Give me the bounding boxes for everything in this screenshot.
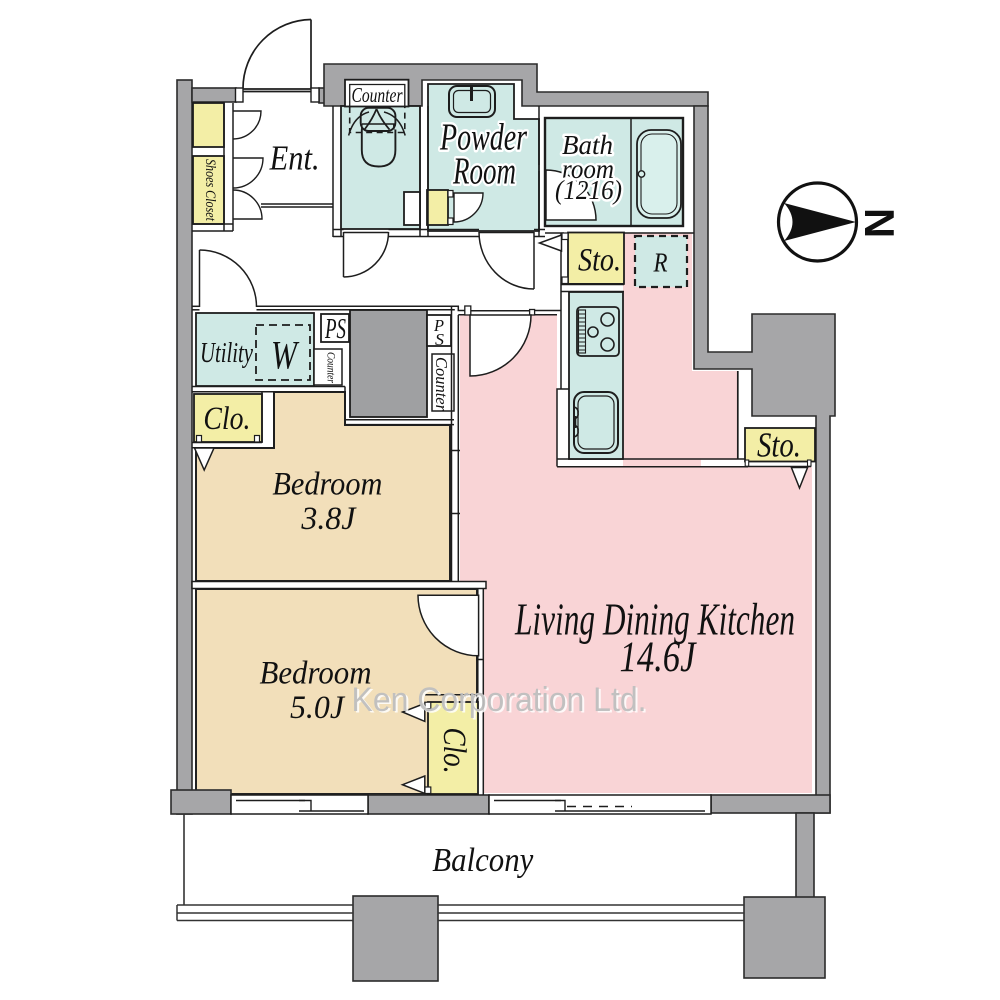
svg-text:Ent.: Ent. bbox=[269, 138, 320, 177]
svg-text:Balcony: Balcony bbox=[432, 842, 534, 879]
svg-text:14.6J: 14.6J bbox=[620, 634, 698, 681]
svg-text:Shoes Closet: Shoes Closet bbox=[202, 159, 218, 222]
svg-text:Room: Room bbox=[452, 151, 516, 193]
svg-text:(1216): (1216) bbox=[555, 175, 622, 205]
svg-text:Counter: Counter bbox=[325, 352, 339, 383]
svg-text:PS: PS bbox=[324, 314, 346, 345]
svg-text:N: N bbox=[856, 208, 903, 238]
svg-text:Counter: Counter bbox=[432, 357, 451, 411]
svg-text:R: R bbox=[653, 248, 668, 278]
svg-text:W: W bbox=[271, 333, 300, 378]
svg-text:Counter: Counter bbox=[352, 83, 404, 107]
svg-text:S: S bbox=[435, 330, 445, 349]
svg-text:Sto.: Sto. bbox=[757, 426, 801, 465]
svg-text:3.8J: 3.8J bbox=[300, 501, 356, 537]
svg-text:Bedroom: Bedroom bbox=[272, 467, 382, 503]
svg-text:Clo.: Clo. bbox=[203, 401, 250, 437]
svg-text:Clo.: Clo. bbox=[436, 728, 472, 774]
svg-text:Ken Corporation Ltd.: Ken Corporation Ltd. bbox=[352, 681, 647, 719]
svg-text:Utility: Utility bbox=[200, 337, 253, 369]
svg-text:Sto.: Sto. bbox=[578, 243, 621, 279]
svg-text:5.0J: 5.0J bbox=[290, 690, 345, 726]
